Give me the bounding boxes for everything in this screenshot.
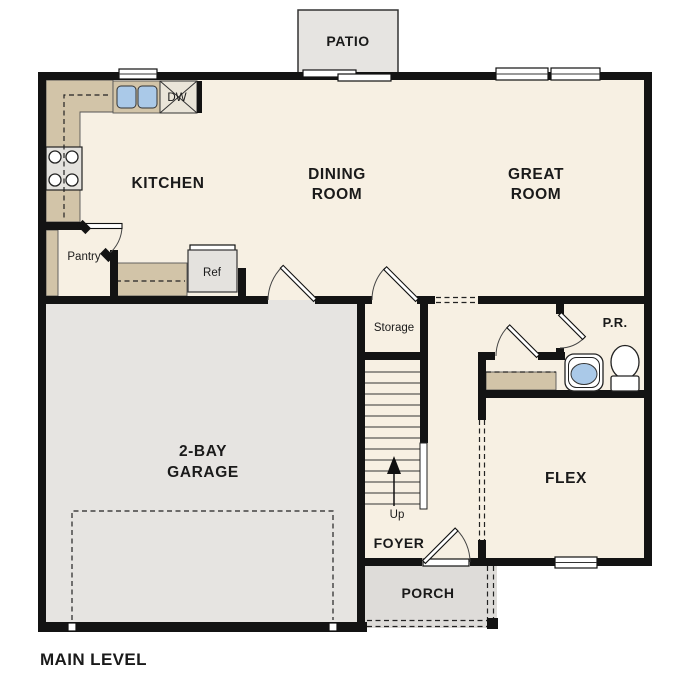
porch-post: [487, 618, 498, 629]
powder-room-label: P.R.: [603, 315, 628, 330]
powder-sink-basin: [571, 364, 597, 385]
front-door-threshold: [423, 559, 469, 566]
patio-slider-panel-2: [338, 74, 391, 81]
kitchen-label: KITCHEN: [131, 175, 204, 192]
wall-ref-stub: [238, 268, 246, 296]
toilet-bowl: [611, 346, 639, 379]
refrigerator-label: Ref: [203, 267, 222, 279]
counter-end-wall: [197, 81, 202, 113]
wall-exterior-right: [644, 72, 652, 566]
great-room-label-line1: GREAT: [508, 166, 564, 183]
patio-label: PATIO: [326, 33, 369, 49]
wall-front-left: [365, 558, 422, 566]
closet-shelf: [486, 372, 556, 390]
garage-door-jamb-left: [68, 623, 76, 631]
wall-mid-a: [38, 296, 268, 304]
floor-plan-drawing: PATIO KITCHEN DINING ROOM GREAT ROOM Pan…: [0, 0, 687, 687]
dining-room-label-line1: DINING: [308, 166, 366, 183]
dishwasher-label: DW: [167, 92, 186, 104]
burner-icon: [49, 151, 61, 163]
wall-garage-right: [357, 296, 365, 632]
foyer-label: FOYER: [374, 535, 425, 551]
burner-icon: [49, 174, 61, 186]
dining-room-label-line2: ROOM: [312, 186, 363, 203]
plan-title: MAIN LEVEL: [40, 650, 147, 669]
stairs-up-label: Up: [390, 509, 405, 521]
storage-label: Storage: [374, 322, 414, 334]
pantry-label: Pantry: [67, 251, 100, 263]
toilet-tank: [611, 376, 639, 391]
wall-flex-left-lower: [478, 540, 486, 566]
wall-exterior-left: [38, 72, 46, 632]
wall-stair-right: [420, 296, 428, 443]
flex-label: FLEX: [545, 470, 587, 487]
wall-pr-stub-top: [556, 296, 564, 314]
garage-label-line1: 2-BAY: [179, 443, 227, 460]
wall-flex-left-upper: [478, 352, 486, 420]
burner-icon: [66, 174, 78, 186]
burner-icon: [66, 151, 78, 163]
wall-mid-d: [478, 296, 652, 304]
wall-storage-bottom: [357, 352, 428, 360]
pantry-shelf-strip: [46, 230, 58, 296]
stair-railing: [420, 443, 427, 509]
pantry-door-leaf: [86, 224, 122, 229]
great-room-label-line2: ROOM: [511, 186, 562, 203]
sink-bowl-left: [117, 86, 136, 108]
kitchen-lower-counter: [116, 263, 187, 296]
garage-door-jamb-right: [329, 623, 337, 631]
floor-plan-page: PATIO KITCHEN DINING ROOM GREAT ROOM Pan…: [0, 0, 687, 687]
garage-label-line2: GARAGE: [167, 464, 239, 481]
sink-bowl-right: [138, 86, 157, 108]
porch-label: PORCH: [401, 585, 454, 601]
wall-garage-bottom: [38, 622, 367, 632]
wall-pr-stub-bottom: [556, 348, 564, 360]
wall-pantry-stub: [38, 222, 84, 230]
